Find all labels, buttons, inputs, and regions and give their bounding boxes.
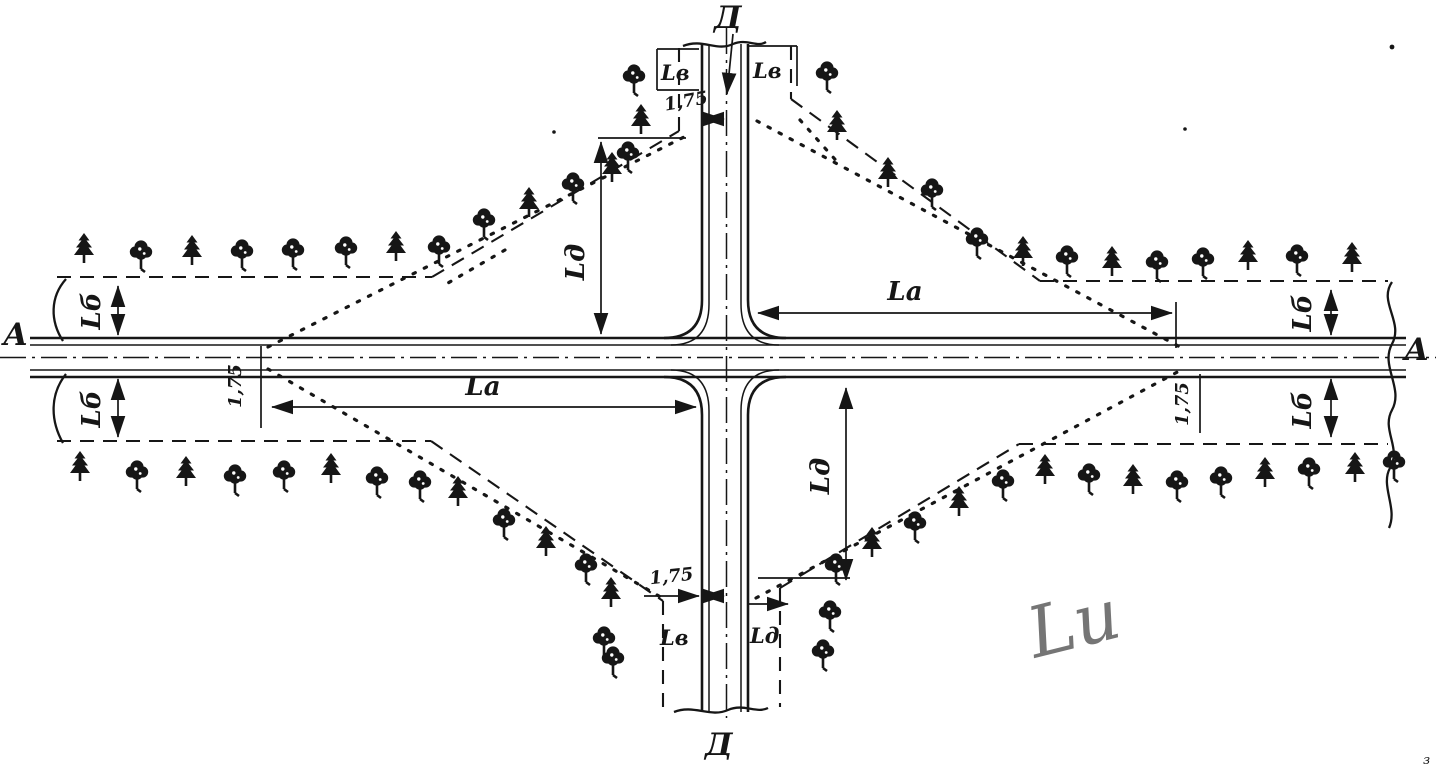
tree-icon [1146,250,1168,282]
spruce-icon [448,476,468,506]
tree-icon [816,61,838,93]
section-label-right: А [1402,332,1429,368]
dimension-lines [118,34,1331,604]
spruce-icon [176,456,196,486]
dim-label-lv-top-left: Lв [660,60,690,85]
tree-icon [493,508,515,540]
tree-icon [130,240,152,272]
spruce-icon [827,110,847,140]
tree-icon [623,64,645,96]
diagram-labels: Д Д А А Lа Lа Lб Lб Lб Lб Lд Lд Lв Lв Lв… [1,0,1430,768]
section-label-bottom: Д [703,727,734,763]
diagram-svg: Д Д А А Lа Lа Lб Lб Lб Lб Lд Lд Lв Lв Lв… [0,0,1436,769]
spruce-icon [631,104,651,134]
spruce-icon [1123,464,1143,494]
dim-label-lv-bottom-right: Lд [749,623,779,648]
tree-icon [562,172,584,204]
dim-label-lb-right-bottom: Lб [1288,391,1318,429]
spruce-icon [878,157,898,187]
spruce-icon [386,231,406,261]
tree-icon [1286,244,1308,276]
tree-icon [409,470,431,502]
tree-icon [224,464,246,496]
sight-lines [268,120,1183,599]
dim-label-lv-top-right: Lв [752,58,782,83]
section-label-top: Д [712,0,743,36]
dim-label-175-bottom: 1,75 [649,564,695,589]
tree-icon [1192,247,1214,279]
tree-icon [273,460,295,492]
dim-label-175-right: 1,75 [1172,382,1193,426]
tree-icon [1166,470,1188,502]
dim-label-ld-top: Lд [561,244,591,281]
spruce-icon [1013,236,1033,266]
tree-icon [428,235,450,267]
tree-icon [992,469,1014,501]
tree-icon [126,460,148,492]
dim-label-la-left: Lа [464,372,500,402]
tree-icon [282,238,304,270]
dim-label-lb-left-top: Lб [77,292,107,330]
section-label-left: А [1,317,28,353]
dim-label-lv-bottom-left: Lв [659,625,689,650]
spruce-icon [1035,454,1055,484]
tree-icon [904,511,926,543]
tree-icon [335,236,357,268]
spruce-icon [601,577,621,607]
spruce-icon [321,453,341,483]
spruce-icon [1102,246,1122,276]
tree-icon [617,141,639,173]
tree-icon [966,227,988,259]
tree-icon [366,466,388,498]
dim-label-la-right: Lа [886,277,922,307]
spruce-icon [1342,242,1362,272]
dim-label-lb-left-bottom: Lб [77,390,107,428]
spruce-icon [1238,240,1258,270]
spruce-icon [70,451,90,481]
spruce-icon [1345,452,1365,482]
dim-label-lb-right-top: Lб [1288,294,1318,332]
road-axes [0,28,1436,718]
tree-icon [819,600,841,632]
tree-icon [1056,245,1078,277]
tree-icon [812,639,834,671]
tree-icon [921,178,943,210]
dim-label-175-left: 1,75 [225,364,246,408]
spruce-icon [182,235,202,265]
spruce-icon [1255,457,1275,487]
tree-icon [1078,463,1100,495]
tree-icon [1210,466,1232,498]
handwritten-note: Lи [1017,573,1128,675]
spruce-icon [74,233,94,263]
tree-icon [231,239,253,271]
spruce-icon [536,526,556,556]
corner-mark: з [1423,753,1430,768]
intersection-plan-diagram: Д Д А А Lа Lа Lб Lб Lб Lб Lд Lд Lв Lв Lв… [0,0,1436,769]
spruce-icon [949,486,969,516]
tree-icon [1298,457,1320,489]
dim-label-ld-bottom: Lд [806,458,836,495]
